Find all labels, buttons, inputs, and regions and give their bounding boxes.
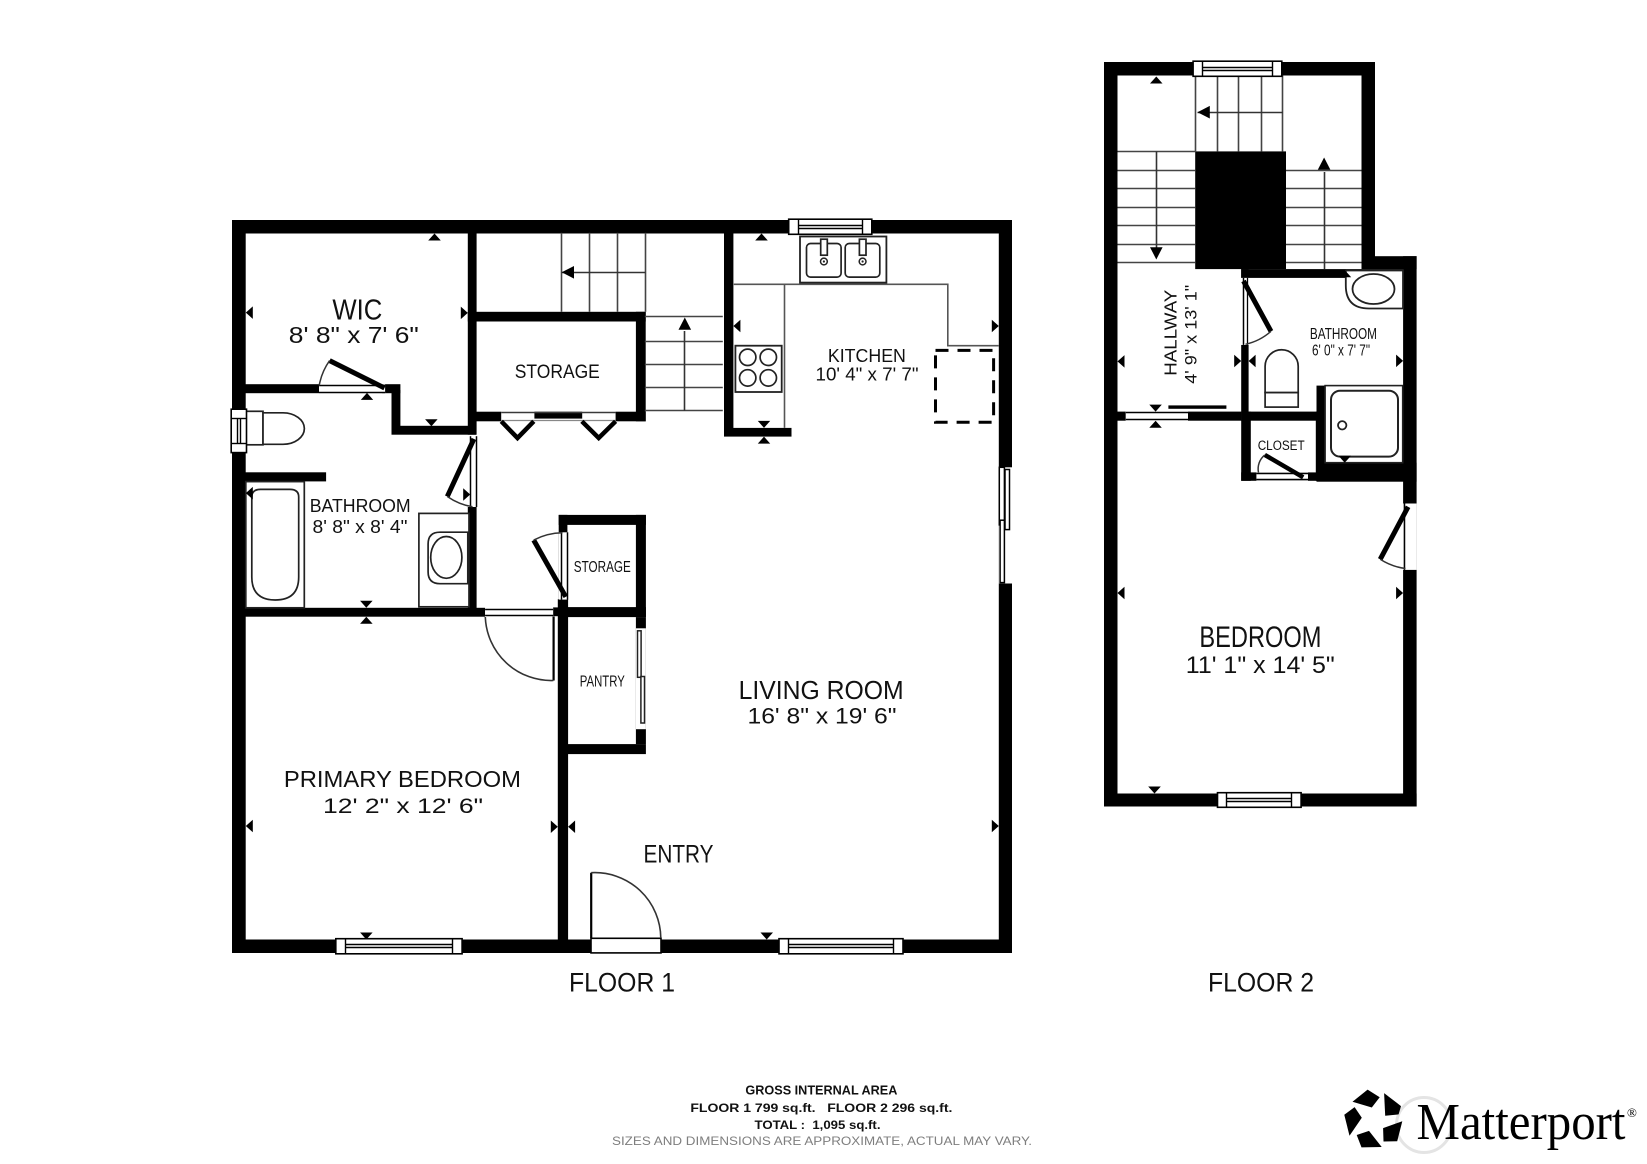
svg-text:STORAGE: STORAGE bbox=[515, 361, 600, 383]
svg-text:CLOSET: CLOSET bbox=[1258, 438, 1305, 453]
svg-text:KITCHEN: KITCHEN bbox=[828, 346, 906, 366]
svg-text:BEDROOM: BEDROOM bbox=[1199, 621, 1321, 654]
svg-text:12' 2" x 12' 6": 12' 2" x 12' 6" bbox=[323, 794, 483, 818]
svg-text:PRIMARY BEDROOM: PRIMARY BEDROOM bbox=[284, 766, 521, 792]
svg-text:Matterport: Matterport bbox=[1417, 1094, 1627, 1151]
svg-text:8' 8" x 8' 4": 8' 8" x 8' 4" bbox=[313, 516, 408, 537]
svg-text:FLOOR 1 799 sq.ft. FLOOR 2 2: FLOOR 1 799 sq.ft. FLOOR 2 296 sq.ft. bbox=[690, 1101, 952, 1115]
svg-text:BATHROOM: BATHROOM bbox=[310, 495, 411, 516]
svg-text:8' 8" x 7' 6": 8' 8" x 7' 6" bbox=[289, 322, 419, 348]
svg-text:11' 1" x 14' 5": 11' 1" x 14' 5" bbox=[1186, 652, 1335, 679]
svg-text:GROSS INTERNAL AREA: GROSS INTERNAL AREA bbox=[745, 1084, 897, 1098]
svg-text:6' 0" x 7' 7": 6' 0" x 7' 7" bbox=[1312, 342, 1370, 360]
svg-text:PANTRY: PANTRY bbox=[580, 674, 625, 691]
svg-text:4' 9" x 13' 1": 4' 9" x 13' 1" bbox=[1181, 285, 1200, 384]
svg-text:LIVING ROOM: LIVING ROOM bbox=[739, 677, 904, 705]
svg-text:TOTAL : 1,095 sq.ft.: TOTAL : 1,095 sq.ft. bbox=[755, 1118, 881, 1132]
svg-text:SIZES AND DIMENSIONS ARE APPRO: SIZES AND DIMENSIONS ARE APPROXIMATE, AC… bbox=[612, 1134, 1032, 1148]
svg-text:HALLWAY: HALLWAY bbox=[1161, 289, 1181, 375]
svg-text:BATHROOM: BATHROOM bbox=[1310, 325, 1377, 343]
svg-text:FLOOR 2: FLOOR 2 bbox=[1208, 967, 1314, 997]
svg-text:10' 4" x 7' 7": 10' 4" x 7' 7" bbox=[816, 365, 919, 385]
svg-text:®: ® bbox=[1627, 1105, 1637, 1120]
svg-text:16' 8" x 19' 6": 16' 8" x 19' 6" bbox=[748, 704, 897, 729]
svg-text:FLOOR 1: FLOOR 1 bbox=[569, 967, 675, 997]
svg-text:ENTRY: ENTRY bbox=[644, 841, 714, 868]
svg-text:STORAGE: STORAGE bbox=[574, 559, 631, 576]
